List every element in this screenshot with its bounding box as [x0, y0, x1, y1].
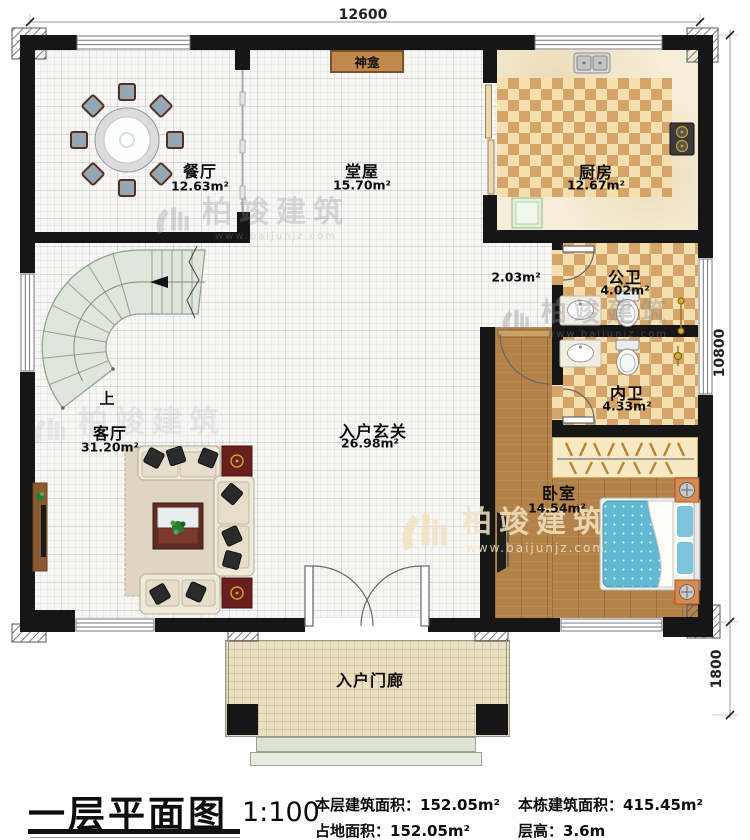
- foyer-area: 26.98m²: [341, 436, 399, 451]
- dimension-right-lower: 1800: [709, 650, 725, 689]
- porch-pillar-right: [476, 704, 508, 735]
- sofa-set: [125, 446, 254, 614]
- stat-floor-area: 本层建筑面积：152.05m²: [315, 794, 500, 815]
- stat-label: 本栋建筑面积：: [518, 796, 623, 814]
- inner-bath-fixtures: [560, 340, 682, 375]
- hall-area: 15.70m²: [333, 178, 391, 193]
- window-top-kitchen: [535, 36, 662, 49]
- window-top-dining: [77, 36, 190, 49]
- porch-pillar-left: [227, 704, 258, 735]
- corridor-area: 2.03m²: [491, 270, 540, 285]
- dining-room-area: 12.63m²: [171, 179, 229, 194]
- stat-value: 3.6m: [563, 822, 605, 840]
- bedroom-door: [498, 330, 550, 384]
- window-bottom-living: [76, 619, 154, 631]
- bedroom-area: 14.54m²: [528, 501, 586, 516]
- dimension-right-upper: 10800: [712, 329, 728, 378]
- tv-cabinet: [33, 483, 47, 571]
- stairs-up-label: 上: [99, 388, 114, 409]
- inner-bath-area: 4.33m²: [602, 399, 651, 414]
- title-underline-thin: [30, 837, 240, 838]
- stat-label: 本层建筑面积：: [315, 796, 420, 814]
- bed: [600, 498, 700, 590]
- kitchen-sink: [574, 53, 610, 73]
- coffee-table: [153, 503, 203, 549]
- stat-label: 层高：: [518, 822, 563, 840]
- kitchen-fridge: [512, 198, 542, 228]
- stat-floor-height: 层高：3.6m: [518, 820, 605, 840]
- inner-bath-door: [563, 389, 594, 423]
- wardrobe-hangers: [557, 443, 694, 474]
- window-bottom-bedroom: [561, 619, 662, 631]
- kitchen-stove: [670, 123, 694, 155]
- kitchen-sliding-door: [486, 85, 495, 194]
- window-right-bath: [699, 259, 712, 394]
- public-bath-door: [563, 246, 594, 280]
- floor-plan-canvas: 神龛: [0, 0, 750, 840]
- porch-label: 入户门廊: [336, 667, 404, 691]
- staircase: [42, 246, 205, 410]
- stat-value: 152.05m²: [420, 796, 500, 814]
- stat-label: 占地面积：: [315, 822, 390, 840]
- public-bath-area: 4.02m²: [600, 283, 649, 298]
- stat-value: 415.45m²: [623, 796, 703, 814]
- dining-hall-partition: [240, 70, 245, 212]
- stat-value: 152.05m²: [390, 822, 470, 840]
- stat-footprint-area: 占地面积：152.05m²: [315, 820, 470, 840]
- bedroom-tv: [497, 512, 508, 573]
- entry-double-door: [305, 566, 429, 626]
- dining-table-set: [71, 84, 183, 196]
- title-underline: [28, 829, 240, 834]
- living-room-area: 31.20m²: [81, 440, 139, 455]
- dimension-top: 12600: [339, 7, 388, 23]
- kitchen-area: 12.67m²: [567, 178, 625, 193]
- stat-building-area: 本栋建筑面积：415.45m²: [518, 794, 703, 815]
- window-left-living: [21, 274, 34, 371]
- plan-scale: 1:100: [242, 797, 320, 828]
